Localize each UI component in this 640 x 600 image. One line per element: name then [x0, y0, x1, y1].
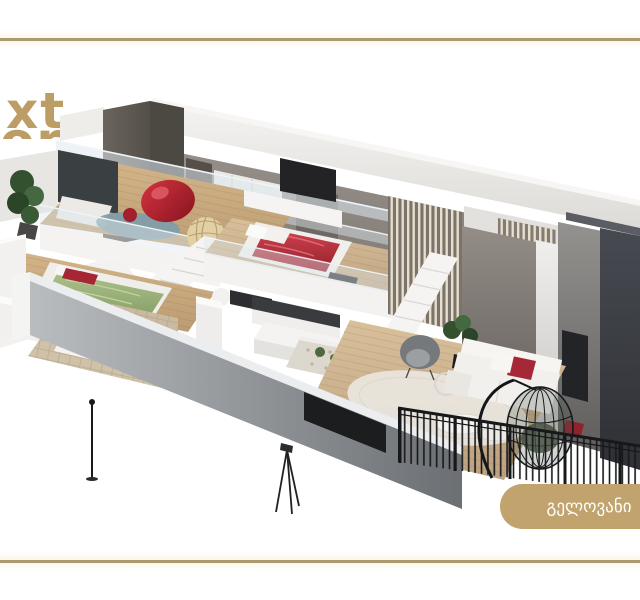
- red-pouf: [123, 208, 137, 222]
- tripod-lamp: [276, 443, 299, 514]
- location-button[interactable]: გელოვანი: [500, 484, 640, 529]
- charcoal-wall: [600, 228, 640, 470]
- location-button-label: გელოვანი: [547, 497, 632, 517]
- bottom-gold-rule: [0, 560, 640, 563]
